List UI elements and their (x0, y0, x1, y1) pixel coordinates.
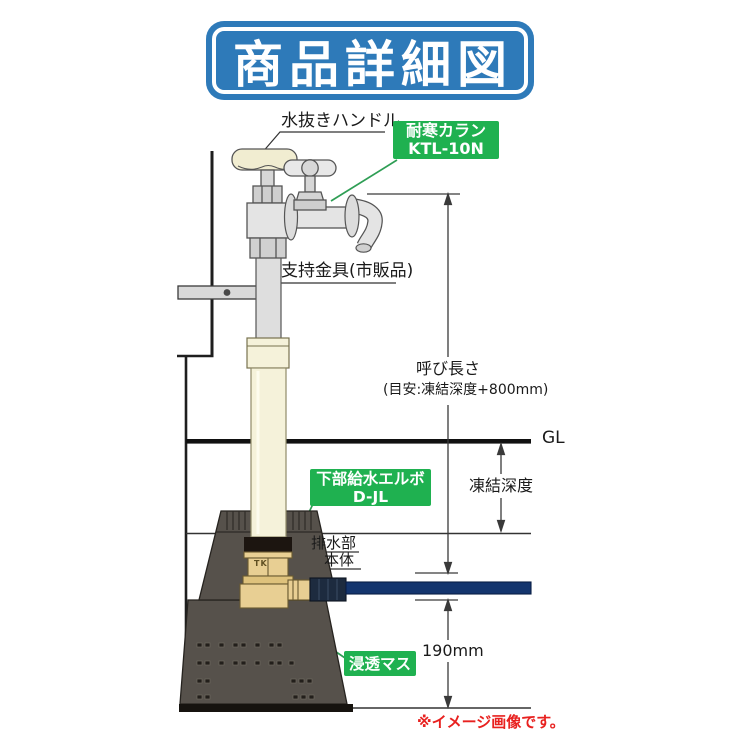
arrowhead (445, 563, 452, 574)
callout-faucet-name: 耐寒カラン (406, 122, 486, 140)
cross-handle-stem (305, 176, 315, 192)
elbow-waist-ring (243, 576, 293, 584)
product-detail-diagram: 商品詳細図 水抜きハンドル 支持金具(市販品) 呼び長さ (目安:凍結深度+80… (0, 0, 740, 740)
callout-elbow-model: 下部給水エルボ D-JL (310, 469, 431, 506)
faucet-callout-leader (331, 160, 397, 201)
faucet-assembly (232, 149, 375, 258)
handle-stem (261, 170, 274, 188)
pipe-coupling (247, 338, 289, 368)
faucet-riser-body (247, 203, 288, 238)
callout-basin-name: 浸透マス (349, 655, 411, 673)
spout-tip (356, 244, 371, 252)
label-nominal-length-hint: (目安:凍結深度+800mm) (383, 382, 523, 398)
arrowhead (445, 194, 452, 205)
callout-faucet-model: 耐寒カラン KTL-10N (393, 121, 499, 159)
basin-base (179, 704, 353, 712)
elbow-top-lip (244, 552, 292, 558)
callout-basin: 浸透マス (344, 651, 416, 676)
label-support-bracket: 支持金具(市販品) (281, 262, 413, 281)
bracket-screw (224, 289, 231, 296)
gl-line (186, 439, 531, 444)
cream-pipe (251, 368, 286, 537)
title-badge: 商品詳細図 (206, 21, 534, 100)
basin-lower-body (180, 600, 347, 704)
label-nominal-length: 呼び長さ (388, 360, 508, 378)
support-bracket (178, 286, 258, 299)
elbow-side-outlet (288, 580, 310, 600)
arrowhead (445, 600, 452, 611)
callout-faucet-code: KTL-10N (408, 140, 484, 158)
label-tk-mark: TK (254, 559, 268, 568)
packing-nut (294, 200, 326, 210)
upper-gray-pipe (256, 250, 281, 340)
arrowhead (445, 697, 452, 708)
label-drain-part: 排水部 (311, 535, 356, 552)
label-main-body: 本体 (324, 552, 354, 569)
supply-elbow (240, 537, 531, 608)
label-ground-level: GL (542, 429, 565, 448)
callout-elbow-name: 下部給水エルボ (316, 470, 425, 488)
stem-hex-nut (253, 186, 282, 203)
page-title: 商品詳細図 (233, 25, 513, 97)
drain-gap-band (244, 537, 292, 552)
callout-elbow-code: D-JL (353, 488, 388, 506)
arrowhead (498, 444, 505, 455)
spout-flange (345, 195, 359, 237)
label-frost-depth: 凍結深度 (468, 477, 534, 495)
cross-handle-hub (302, 160, 318, 176)
label-basin-height: 190mm (422, 642, 474, 660)
image-disclaimer-note: ※イメージ画像です。 (417, 711, 565, 732)
riser-coupling-nut (250, 238, 286, 258)
supply-pipe (346, 582, 531, 594)
arrowhead (498, 521, 505, 532)
elbow-lower-body (240, 584, 288, 608)
label-drain-handle: 水抜きハンドル (281, 112, 400, 131)
